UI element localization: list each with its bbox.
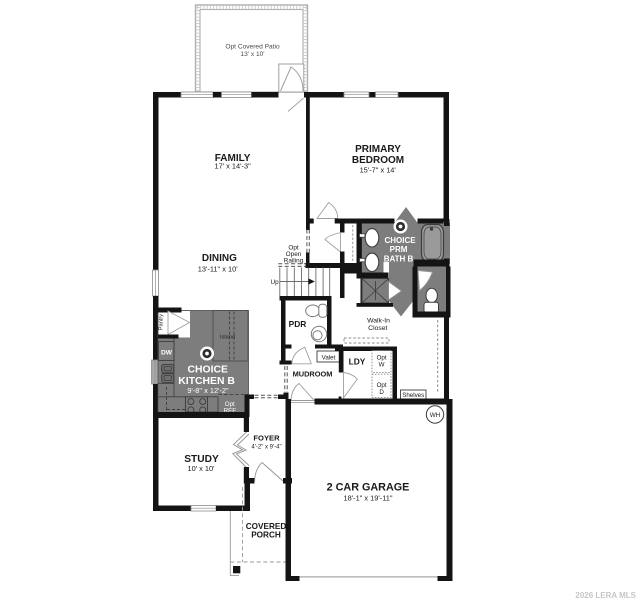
svg-text:FOYER: FOYER	[253, 434, 280, 443]
svg-text:W: W	[379, 361, 385, 368]
svg-text:LDY: LDY	[349, 357, 366, 367]
svg-text:PDR: PDR	[289, 319, 307, 329]
svg-text:WH: WH	[430, 412, 440, 419]
svg-text:13' x 10': 13' x 10'	[240, 51, 264, 58]
svg-text:Walk-In: Walk-In	[367, 317, 390, 324]
svg-text:10' x 10': 10' x 10'	[187, 464, 215, 473]
svg-text:15'-7" x 14': 15'-7" x 14'	[360, 166, 397, 175]
svg-text:2 CAR GARAGE: 2 CAR GARAGE	[327, 482, 410, 494]
svg-text:MUDROOM: MUDROOM	[293, 370, 333, 379]
svg-text:Valet: Valet	[322, 354, 336, 361]
svg-text:Railing: Railing	[284, 258, 304, 265]
svg-text:PORCH: PORCH	[251, 531, 281, 540]
svg-text:13'-11" x 10': 13'-11" x 10'	[198, 265, 238, 274]
svg-text:CHOICE: CHOICE	[187, 364, 227, 375]
svg-text:PRM: PRM	[390, 245, 408, 254]
svg-text:Up: Up	[271, 279, 280, 286]
svg-text:BEDROOM: BEDROOM	[352, 155, 404, 166]
svg-text:Closet: Closet	[368, 325, 387, 332]
svg-text:18'-1" x 19'-11": 18'-1" x 19'-11"	[343, 493, 392, 502]
svg-text:Shelves: Shelves	[402, 392, 424, 399]
svg-text:Opt: Opt	[377, 354, 387, 361]
svg-text:BATH B: BATH B	[384, 255, 414, 264]
svg-text:17' x 14'-3": 17' x 14'-3"	[214, 162, 251, 171]
svg-text:9'-8" x 12'-2": 9'-8" x 12'-2"	[187, 386, 229, 395]
svg-text:Pantry: Pantry	[159, 314, 165, 330]
svg-text:PRIMARY: PRIMARY	[355, 144, 401, 155]
svg-text:DINING: DINING	[202, 253, 237, 264]
svg-text:CHOICE: CHOICE	[384, 236, 416, 245]
svg-text:2026 LERA MLS: 2026 LERA MLS	[575, 591, 636, 600]
svg-text:Opt: Opt	[377, 382, 387, 389]
svg-text:Opt Covered Patio: Opt Covered Patio	[225, 44, 280, 51]
svg-text:DW: DW	[161, 350, 173, 357]
svg-text:4'-2" x 9'-4": 4'-2" x 9'-4"	[251, 445, 281, 451]
svg-text:Island: Island	[220, 335, 235, 341]
svg-text:D: D	[379, 389, 384, 396]
